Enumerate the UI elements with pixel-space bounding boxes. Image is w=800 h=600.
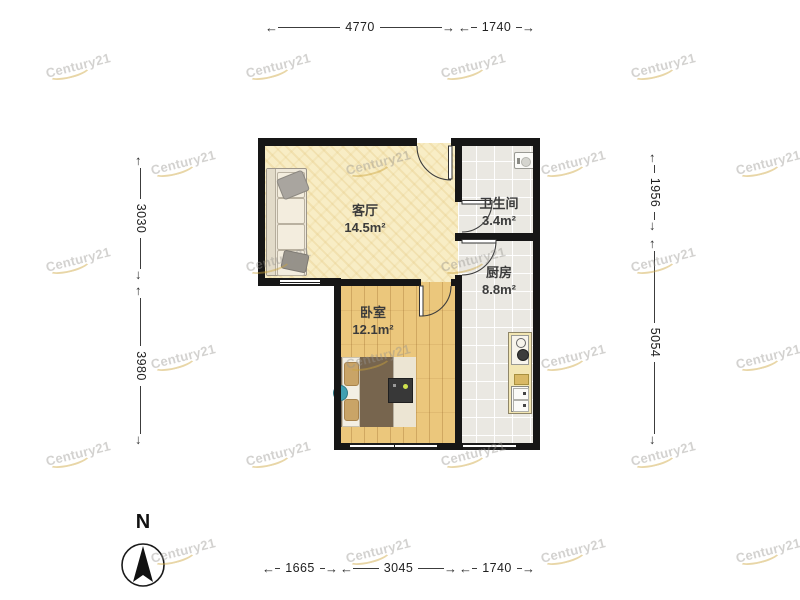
basin-tap [517, 158, 520, 164]
room-area: 8.8m² [466, 282, 532, 299]
room-area: 3.4m² [466, 213, 532, 230]
wall-mid-upper [455, 146, 462, 202]
dim-right-1: ← 1956 → [648, 152, 662, 233]
sofa-backrest [267, 169, 276, 275]
compass: N [116, 506, 170, 592]
tray-dot [403, 384, 408, 389]
wall-bottom-c [516, 443, 540, 450]
dim-top-2: ← 1740 → [458, 20, 535, 34]
dim-bottom-1: ← 1665 → [262, 561, 338, 575]
wall-top-left [258, 138, 417, 146]
dim-value: 5054 [648, 323, 662, 362]
dim-arrow-right-icon: → [522, 21, 535, 34]
room-name: 卫生间 [466, 196, 532, 213]
dim-value: 1956 [648, 173, 662, 212]
floorplan-canvas: 客厅 14.5m² 卫生间 3.4m² 厨房 8.8m² 卧室 12.1m² ←… [0, 0, 800, 600]
watermark: Century21 [44, 244, 112, 275]
dim-value: 4770 [340, 20, 379, 34]
watermark: Century21 [539, 147, 607, 178]
bedroom-label: 卧室 12.1m² [338, 305, 408, 339]
watermark: Century21 [244, 50, 312, 81]
wall-bedroom-top [341, 279, 421, 286]
bathroom-label: 卫生间 3.4m² [466, 196, 532, 230]
wall-right [533, 138, 540, 450]
wall-bath-kitchen-divider [455, 233, 540, 241]
dim-bottom-3: ← 1740 → [459, 561, 535, 575]
watermark: Century21 [629, 244, 697, 275]
room-name: 客厅 [330, 203, 400, 220]
dim-arrow-left-icon: ← [262, 562, 275, 575]
wall-bottom-a [334, 443, 350, 450]
watermark: Century21 [734, 341, 800, 372]
basin-bowl [521, 157, 531, 167]
dim-value: 1740 [477, 20, 516, 34]
dim-arrow-left-icon: ← [135, 285, 148, 298]
dim-arrow-right-icon: → [444, 562, 457, 575]
dim-arrow-right-icon: → [325, 562, 338, 575]
watermark: Century21 [149, 147, 217, 178]
dim-arrow-left-icon: ← [458, 21, 471, 34]
dim-right-2: ← 5054 → [648, 238, 662, 447]
room-name: 厨房 [466, 265, 532, 282]
dim-arrow-right-icon: → [135, 434, 148, 447]
dim-arrow-left-icon: ← [649, 152, 662, 165]
dim-bottom-2: ← 3045 → [340, 561, 457, 575]
watermark: Century21 [244, 438, 312, 469]
watermark: Century21 [629, 438, 697, 469]
sofa [266, 168, 307, 276]
room-name: 卧室 [338, 305, 408, 322]
bed-pillow [344, 362, 359, 386]
double-sink [511, 386, 529, 412]
dim-value: 3030 [134, 199, 148, 238]
dim-arrow-right-icon: → [649, 434, 662, 447]
bathroom-basin [514, 152, 535, 169]
room-area: 12.1m² [338, 322, 408, 339]
dim-left-2: ← 3980 → [134, 285, 148, 447]
watermark: Century21 [149, 341, 217, 372]
wall-mid-lower [455, 275, 462, 450]
dim-arrow-right-icon: → [649, 220, 662, 233]
sink-drain-icon [517, 349, 529, 361]
dim-arrow-right-icon: → [442, 21, 455, 34]
dim-arrow-right-icon: → [135, 269, 148, 282]
watermark: Century21 [734, 535, 800, 566]
dim-top-1: ← 4770 → [265, 20, 455, 34]
burner-icon [516, 338, 526, 348]
wall-bottom-b [437, 443, 463, 450]
dim-arrow-left-icon: ← [340, 562, 353, 575]
bedroom-window [350, 443, 437, 450]
kitchen-window [463, 443, 516, 450]
dim-value: 3045 [379, 561, 418, 575]
wall-living-bottom-a [258, 278, 280, 286]
cooktop-panel [511, 335, 529, 365]
wall-left [258, 138, 265, 286]
dim-value: 1665 [280, 561, 319, 575]
room-area: 14.5m² [330, 220, 400, 237]
dim-arrow-left-icon: ← [649, 238, 662, 251]
watermark: Century21 [539, 535, 607, 566]
living-room-window [280, 278, 320, 286]
watermark: Century21 [44, 438, 112, 469]
watermark: Century21 [44, 50, 112, 81]
dim-arrow-left-icon: ← [265, 21, 278, 34]
watermark: Century21 [539, 341, 607, 372]
dim-value: 1740 [477, 561, 516, 575]
living-room-label: 客厅 14.5m² [330, 203, 400, 237]
dim-arrow-right-icon: → [522, 562, 535, 575]
dim-arrow-left-icon: ← [459, 562, 472, 575]
bed-pillow [344, 399, 359, 421]
watermark: Century21 [439, 50, 507, 81]
dim-arrow-left-icon: ← [135, 155, 148, 168]
watermark: Century21 [734, 147, 800, 178]
compass-north-label: N [136, 511, 150, 533]
kitchen-counter [508, 332, 532, 414]
wall-top-right [451, 138, 540, 146]
bed-tray [388, 378, 413, 403]
kitchen-label: 厨房 8.8m² [466, 265, 532, 299]
bed [336, 357, 416, 427]
watermark: Century21 [629, 50, 697, 81]
dim-left-1: ← 3030 → [134, 155, 148, 282]
dim-value: 3980 [134, 346, 148, 385]
cutting-board [514, 374, 529, 385]
wall-bedroom-left [334, 278, 341, 450]
